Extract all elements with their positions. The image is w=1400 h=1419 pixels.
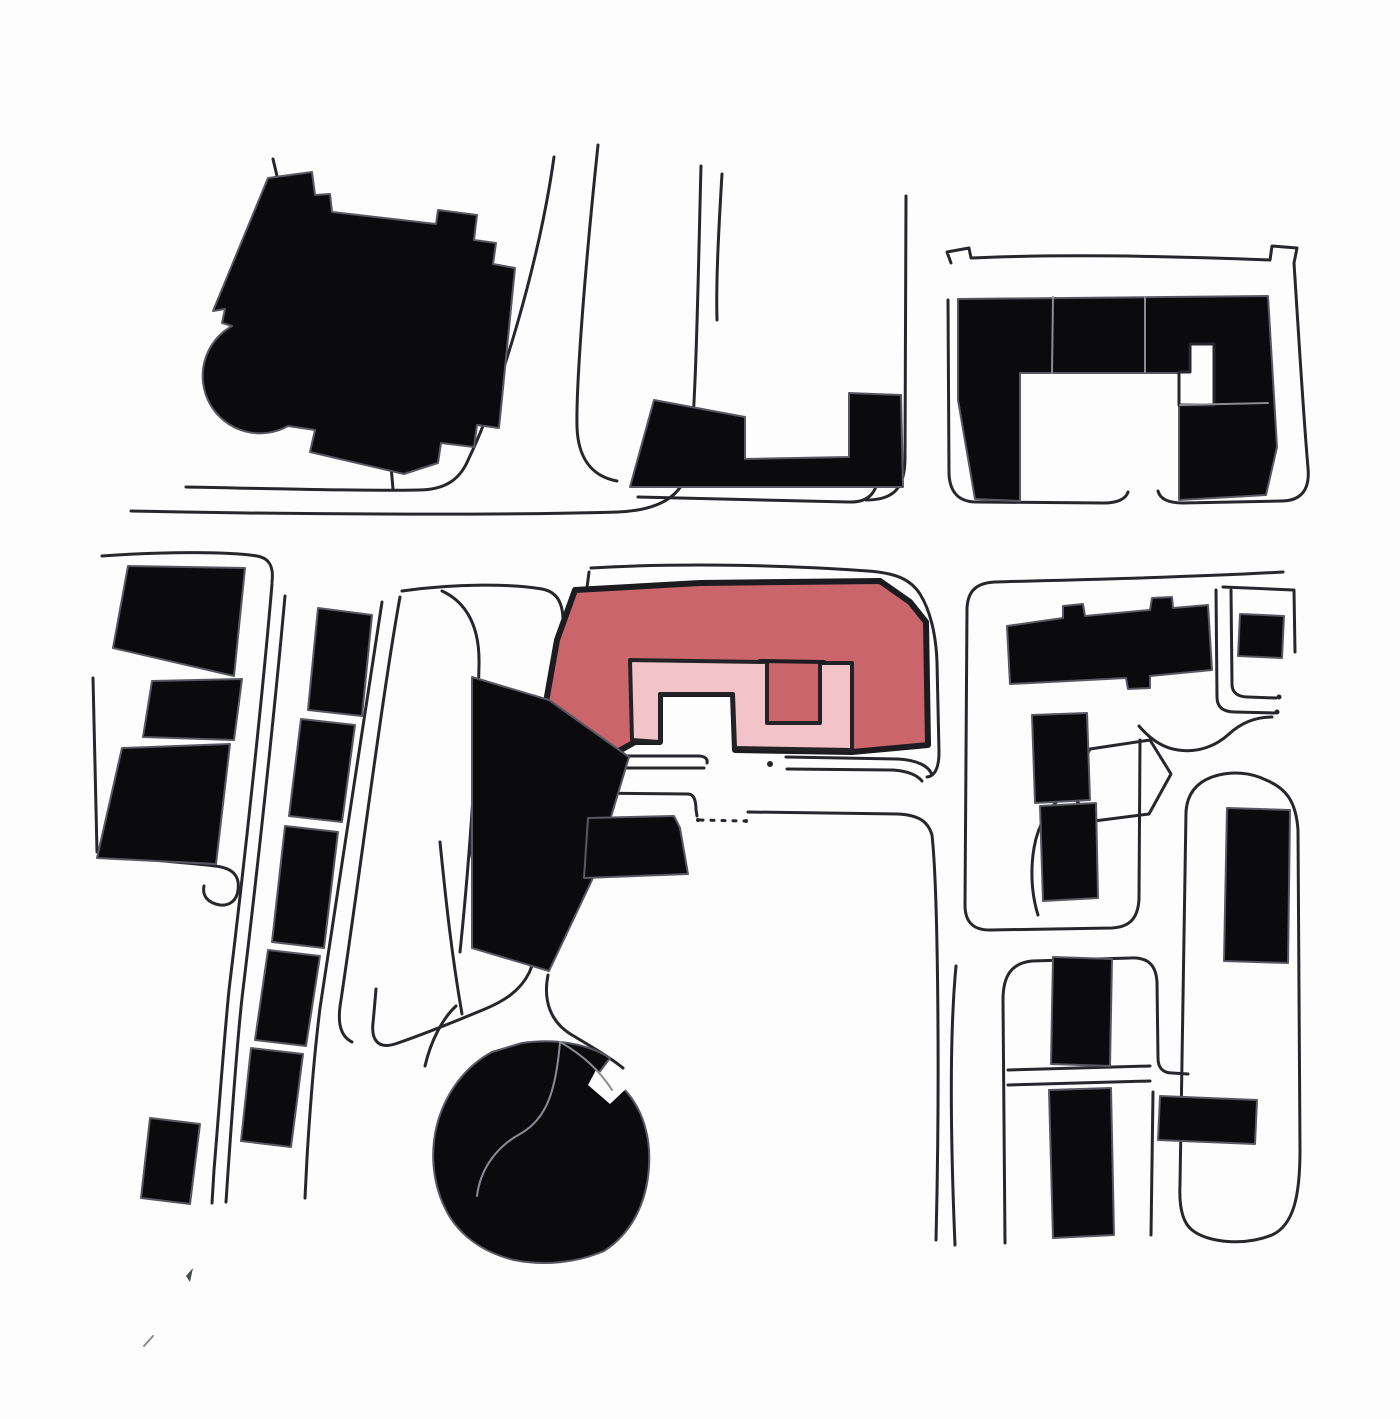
- building-loopa-col-1: [1032, 713, 1090, 803]
- building-west-2: [143, 679, 242, 740]
- building-se-col-2: [1049, 1088, 1114, 1238]
- street-site-south-2b: [787, 769, 922, 781]
- street-zigzag: [1139, 717, 1272, 751]
- building-strip-2: [289, 719, 355, 822]
- building-west-1: [113, 566, 245, 676]
- street-center-fork-left: [577, 145, 617, 481]
- dotted-street-link: [700, 820, 744, 821]
- sw-faint-tick: [144, 1336, 153, 1346]
- building-se-col-1: [1051, 957, 1112, 1066]
- building-loopb-slab: [1224, 808, 1290, 963]
- street-hook-end: [112, 856, 238, 905]
- paper-speck: [186, 1268, 193, 1282]
- street-dot-4: [696, 818, 700, 822]
- building-nw-large: [203, 172, 515, 474]
- building-se-slab: [1158, 1096, 1257, 1144]
- building-strip-5: [241, 1048, 303, 1147]
- highlight-inner-seam: [760, 661, 824, 662]
- street-center-fork-right: [717, 174, 722, 320]
- street-square-right: [1294, 590, 1295, 652]
- street-dot-3: [1277, 695, 1282, 700]
- loop-c-cross-2: [1008, 1081, 1150, 1085]
- building-loopa-slab: [1007, 597, 1212, 689]
- building-strip-1: [308, 608, 372, 716]
- building-round: [433, 1041, 649, 1263]
- site-plan-figure: [0, 0, 1400, 1419]
- street-dot-5: [744, 819, 748, 823]
- highlight-layer: [546, 581, 928, 756]
- nw-tick: [273, 159, 277, 176]
- building-ne-perimeter: [958, 296, 1277, 501]
- ne-block-division-1: [1052, 297, 1053, 373]
- site-plan-drawing: [0, 0, 1400, 1419]
- building-strip-4: [255, 950, 320, 1046]
- buildings-layer: [97, 172, 1290, 1263]
- street-left-edge: [93, 678, 97, 852]
- building-loopa-col-2: [1040, 803, 1098, 901]
- site-plan-page: [0, 0, 1400, 1419]
- street-mid-east-2: [951, 966, 956, 1245]
- street-circle-nw: [425, 1006, 456, 1066]
- building-west-3: [97, 744, 230, 864]
- street-dot-1: [767, 761, 773, 767]
- loop-c-east-lower: [1151, 1092, 1153, 1235]
- street-dot-2: [1275, 710, 1280, 715]
- street-square-top: [1223, 587, 1293, 590]
- building-below-site: [584, 816, 688, 878]
- building-ne-square: [1238, 614, 1284, 658]
- loop-c-cross-1: [1008, 1066, 1150, 1070]
- highlighted-courtyard-pink: [630, 660, 852, 750]
- building-center-l: [630, 393, 903, 487]
- building-strip-6: [141, 1118, 200, 1204]
- street-sw-1: [440, 842, 462, 1014]
- street-mid-east: [748, 812, 938, 1240]
- building-strip-3: [272, 826, 338, 948]
- details-layer: [186, 695, 1282, 1283]
